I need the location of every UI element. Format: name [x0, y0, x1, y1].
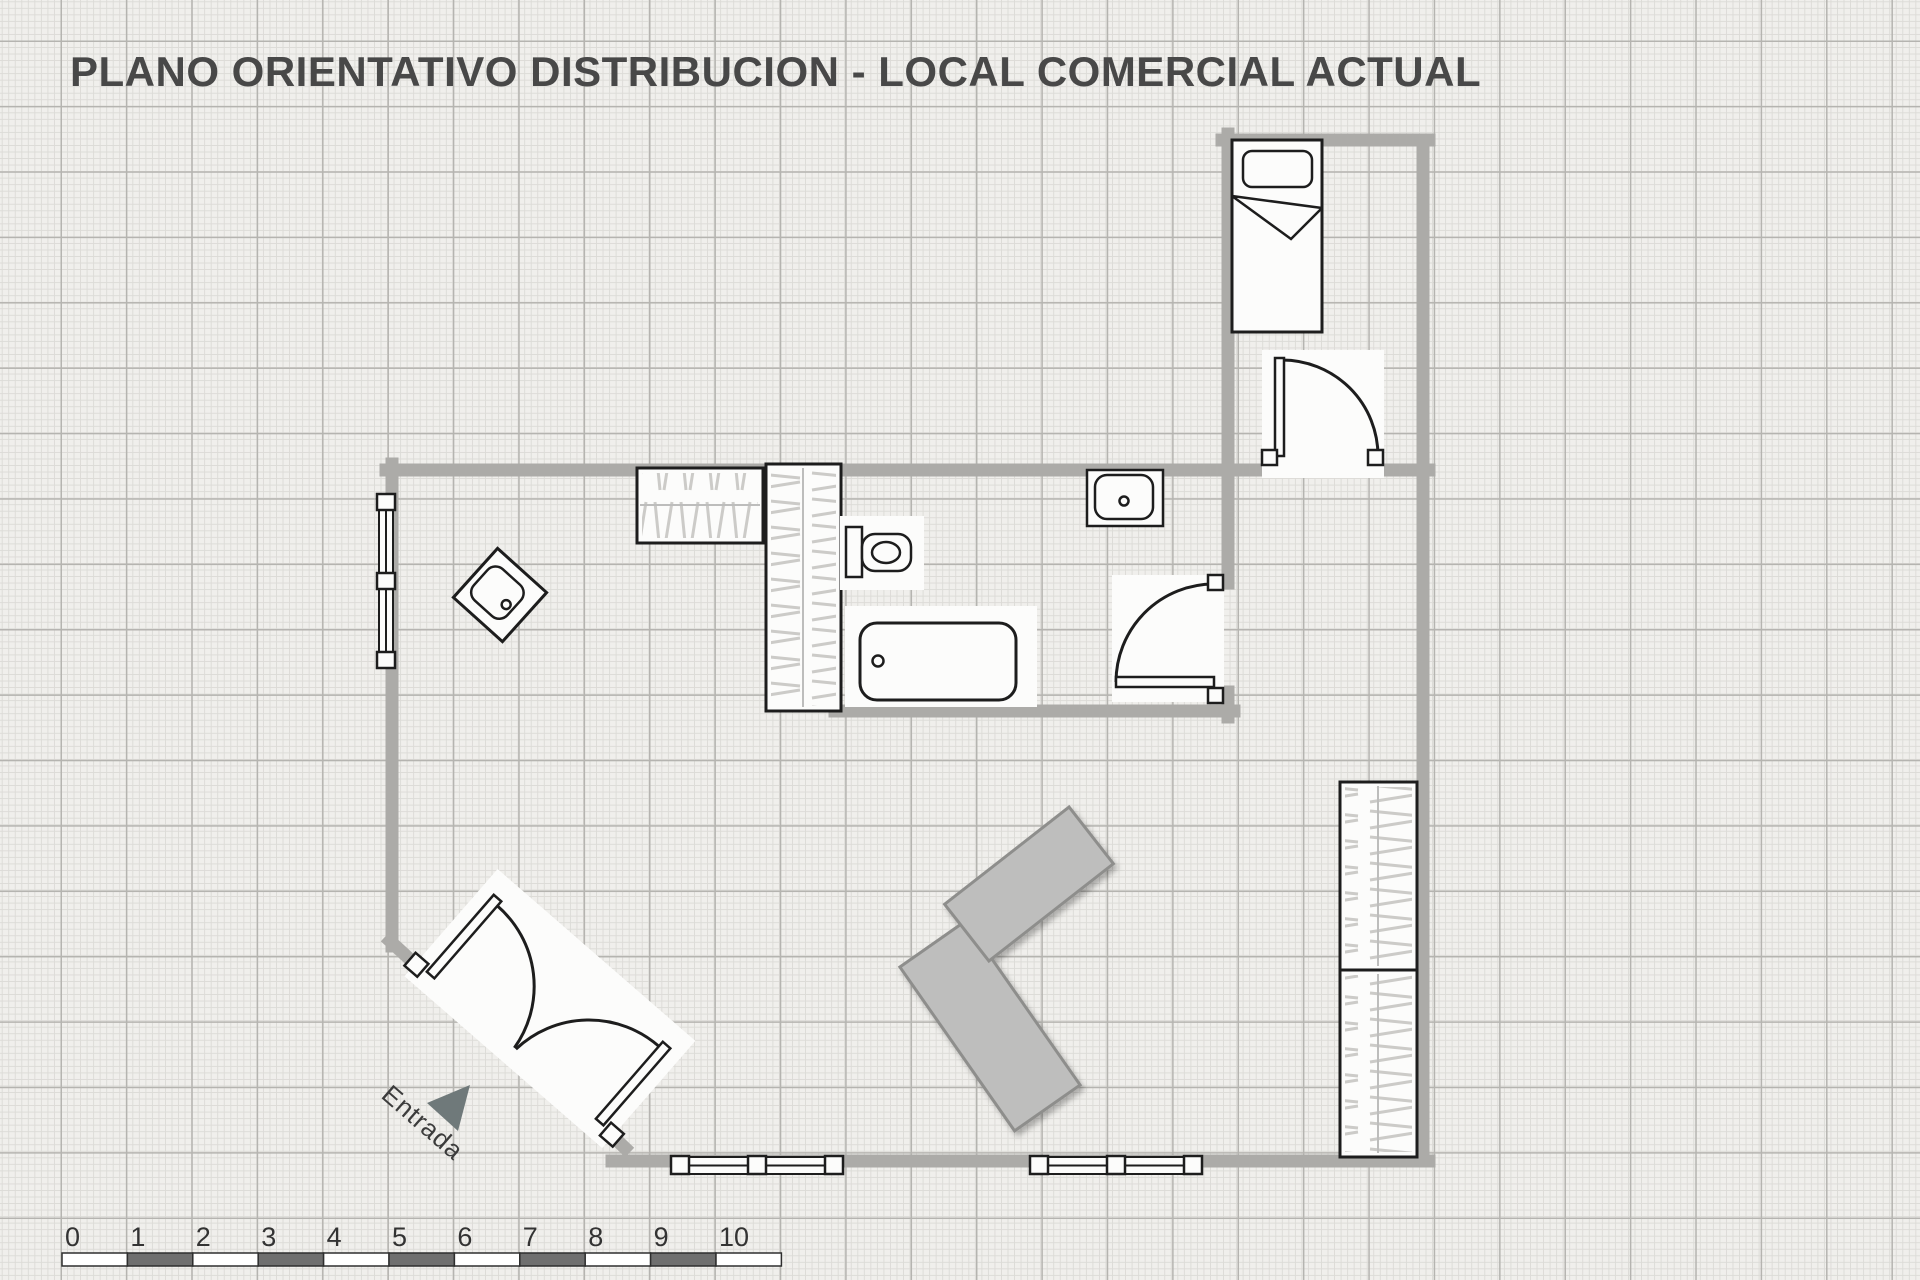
bathroom-sink	[1087, 470, 1163, 526]
ruler-label: 8	[588, 1222, 603, 1252]
ruler-segment	[454, 1253, 519, 1266]
ruler-segment	[520, 1253, 585, 1266]
kitchen-sink-diamond	[453, 548, 546, 641]
bedroom-door	[1262, 350, 1384, 478]
ruler-segment	[258, 1253, 323, 1266]
ruler-label: 3	[261, 1222, 276, 1252]
window-cap	[671, 1156, 689, 1174]
sink-faucet	[1120, 497, 1129, 506]
ruler-segment	[716, 1253, 781, 1266]
window-cap	[825, 1156, 843, 1174]
bathroom-door-hinge	[1208, 575, 1223, 590]
toilet-tank	[846, 527, 862, 577]
window-bottom-right	[1030, 1156, 1202, 1174]
bathtub-drain	[873, 656, 884, 667]
ruler-segment	[585, 1253, 650, 1266]
wardrobe-tall	[766, 464, 841, 711]
bed	[1232, 140, 1322, 332]
ruler-label: 5	[392, 1222, 407, 1252]
window-cap	[748, 1156, 766, 1174]
bathtub	[845, 606, 1037, 707]
counter-upper	[945, 807, 1114, 961]
bathroom-door-hinge	[1208, 688, 1223, 703]
ruler-segment	[651, 1253, 716, 1266]
toilet	[840, 516, 924, 590]
shelving-right-bottom	[1340, 970, 1417, 1157]
ruler-label: 10	[719, 1222, 749, 1252]
ruler-segment	[62, 1253, 127, 1266]
ruler-label: 2	[196, 1222, 211, 1252]
window-cap	[1030, 1156, 1048, 1174]
window-cap	[1107, 1156, 1125, 1174]
ruler-segment	[324, 1253, 389, 1266]
bedroom-door-hinge	[1368, 450, 1383, 465]
ruler-label: 6	[457, 1222, 472, 1252]
ruler-label: 7	[523, 1222, 538, 1252]
bedroom-door-leaf	[1275, 358, 1284, 456]
window-cap	[377, 573, 395, 589]
bathroom-door	[1112, 575, 1224, 703]
bed-pillow	[1243, 151, 1312, 187]
ruler-segment	[127, 1253, 192, 1266]
window-bottom-left	[671, 1156, 843, 1174]
scale-ruler: 012345678910	[62, 1222, 781, 1266]
floor-plan-drawing: Entrada 012345678910	[0, 0, 1920, 1280]
window-left	[377, 494, 395, 668]
wardrobe-horizontal	[637, 468, 763, 543]
ruler-segment	[389, 1253, 454, 1266]
ruler-label: 4	[327, 1222, 342, 1252]
ruler-label: 1	[130, 1222, 145, 1252]
shelving-right-top	[1340, 782, 1417, 970]
toilet-bowl	[862, 534, 911, 571]
window-cap	[377, 652, 395, 668]
display-counter	[900, 807, 1114, 1131]
bathroom-door-leaf	[1116, 677, 1214, 687]
ruler-label: 0	[65, 1222, 80, 1252]
floor-plan-page: { "title": "PLANO ORIENTATIVO DISTRIBUCI…	[0, 0, 1920, 1280]
window-cap	[1184, 1156, 1202, 1174]
window-cap	[377, 494, 395, 510]
ruler-label: 9	[654, 1222, 669, 1252]
ruler-segment	[193, 1253, 258, 1266]
bedroom-door-hinge	[1262, 450, 1277, 465]
